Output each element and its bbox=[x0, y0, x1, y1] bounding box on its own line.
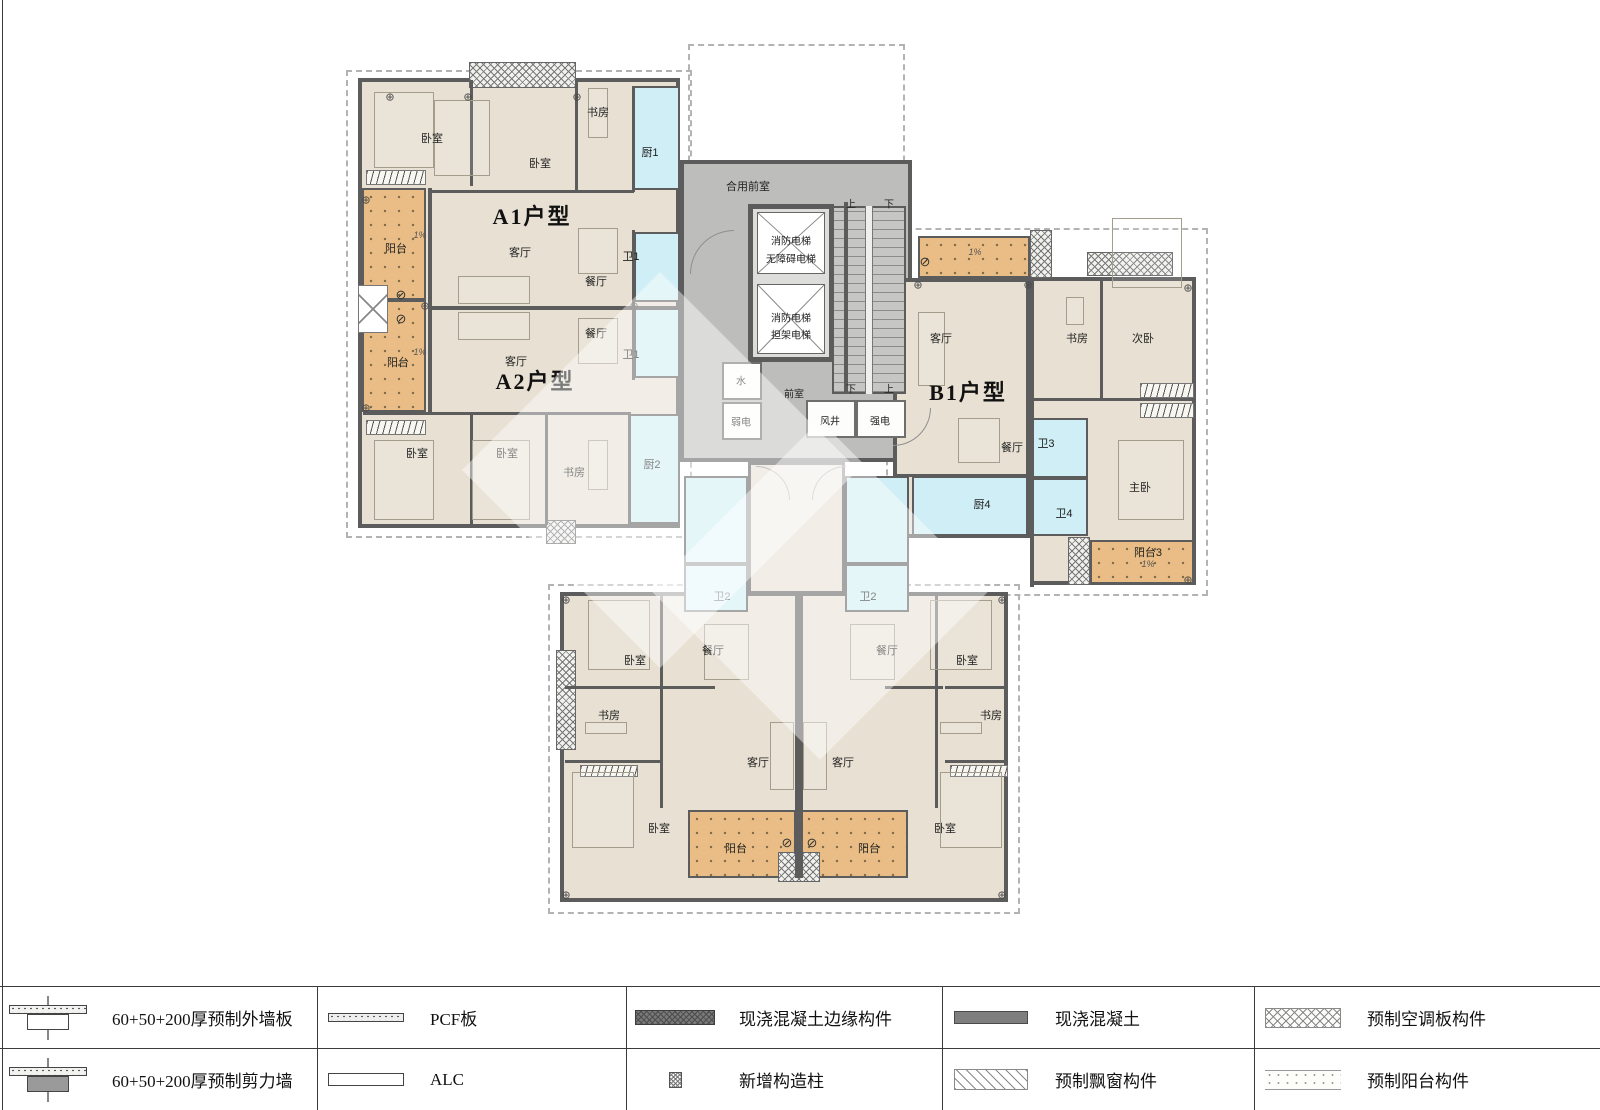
legend-label: 60+50+200厚预制剪力墙 bbox=[112, 1067, 293, 1092]
legend-table: 60+50+200厚预制外墙板 PCF板 现浇混凝土边缘构件 现浇混凝土 预制空… bbox=[0, 986, 1600, 1110]
room-label: 次卧 bbox=[1132, 330, 1154, 346]
room-label: 卧室 bbox=[406, 445, 428, 461]
slope-label: 1% bbox=[968, 247, 981, 257]
floor-drain-icon: ⊘ bbox=[782, 835, 793, 851]
room-label: 客厅 bbox=[832, 754, 854, 770]
room-label: 客厅 bbox=[747, 754, 769, 770]
room-label: 卧室 bbox=[624, 652, 646, 668]
legend-cell: ALC bbox=[318, 1048, 627, 1110]
room-label: 厨4 bbox=[973, 496, 990, 512]
core-label: 无障碍电梯 bbox=[766, 251, 816, 266]
alc-swatch-icon bbox=[328, 1073, 404, 1086]
core-label: 水 bbox=[736, 373, 746, 388]
room-label: 书房 bbox=[563, 464, 585, 480]
core-label: 上 bbox=[846, 196, 856, 211]
room-label: 卫3 bbox=[1037, 435, 1054, 451]
exterior-wall-section-icon bbox=[9, 996, 87, 1040]
core-label: 风井 bbox=[820, 413, 840, 428]
ac-panel-swatch-icon bbox=[1265, 1008, 1341, 1028]
room-label: 客厅 bbox=[509, 244, 531, 260]
cast-concrete-swatch-icon bbox=[954, 1011, 1028, 1024]
room-label: 厨2 bbox=[643, 456, 660, 472]
room-label: 餐厅 bbox=[585, 325, 607, 341]
room-label: 卫2 bbox=[859, 588, 876, 604]
new-column-swatch-icon bbox=[669, 1072, 682, 1088]
legend-label: 现浇混凝土 bbox=[1055, 1005, 1140, 1030]
legend-cell: 预制空调板构件 bbox=[1255, 986, 1600, 1048]
room-label: 阳台 bbox=[385, 240, 407, 256]
room-label: 餐厅 bbox=[876, 642, 898, 658]
legend-label: ALC bbox=[430, 1070, 464, 1090]
room-label: 客厅 bbox=[505, 353, 527, 369]
room-label: 卧室 bbox=[529, 155, 551, 171]
slope-label: 1% bbox=[413, 347, 426, 357]
room-label: 主卧 bbox=[1129, 479, 1151, 495]
room-label: 书房 bbox=[1066, 330, 1088, 346]
room-label: 厨1 bbox=[641, 144, 658, 160]
room-label: 阳台 bbox=[387, 354, 409, 370]
floor-drain-icon: ⊘ bbox=[396, 287, 407, 303]
floor-plan-canvas: ⊕⊕⊕⊕⊕⊕⊕⊕⊕⊕⊕⊕⊕⊕⊕ A1户型A2户型B1户型卧室卧室书房厨1阳台客厅… bbox=[0, 0, 1600, 1110]
legend-cell: 预制阳台构件 bbox=[1255, 1048, 1600, 1110]
room-label: 餐厅 bbox=[1001, 439, 1023, 455]
room-label: 合用前室 bbox=[726, 178, 770, 194]
floor-drain-icon: ⊘ bbox=[396, 311, 407, 327]
room-label: 卧室 bbox=[956, 652, 978, 668]
room-label: 卧室 bbox=[421, 130, 443, 146]
unit-type-label: A1户型 bbox=[493, 199, 572, 231]
legend-label: 60+50+200厚预制外墙板 bbox=[112, 1005, 293, 1030]
legend-cell: 60+50+200厚预制外墙板 bbox=[0, 986, 318, 1048]
core-label: 强电 bbox=[870, 413, 890, 428]
core-label: 下 bbox=[846, 381, 856, 396]
core-label: 前室 bbox=[784, 386, 804, 401]
room-label: 卧室 bbox=[648, 820, 670, 836]
balcony-member-swatch-icon bbox=[1265, 1070, 1341, 1090]
cast-edge-swatch-icon bbox=[635, 1010, 715, 1025]
pcf-swatch-icon bbox=[328, 1013, 404, 1022]
legend-cell: 新增构造柱 bbox=[627, 1048, 943, 1110]
core-label: 消防电梯 bbox=[771, 233, 811, 248]
legend-label: PCF板 bbox=[430, 1005, 477, 1030]
room-label: 卧室 bbox=[934, 820, 956, 836]
core-label: 消防电梯 bbox=[771, 310, 811, 325]
core-label: 下 bbox=[884, 196, 894, 211]
core-label: 担架电梯 bbox=[771, 327, 811, 342]
floor-drain-icon: ⊘ bbox=[920, 254, 931, 270]
room-label: 客厅 bbox=[930, 330, 952, 346]
room-label: 餐厅 bbox=[702, 642, 724, 658]
room-label: 阳台3 bbox=[1134, 544, 1162, 560]
room-label: 卫4 bbox=[1055, 505, 1072, 521]
room-label: 卫2 bbox=[713, 588, 730, 604]
legend-label: 预制空调板构件 bbox=[1367, 1005, 1486, 1030]
legend-label: 预制飘窗构件 bbox=[1055, 1067, 1157, 1092]
slope-label: 1% bbox=[1141, 559, 1154, 569]
legend-cell: 预制飘窗构件 bbox=[943, 1048, 1255, 1110]
room-label: 卫1 bbox=[622, 346, 639, 362]
legend-label: 新增构造柱 bbox=[739, 1067, 824, 1092]
room-label: 书房 bbox=[598, 707, 620, 723]
legend-label: 预制阳台构件 bbox=[1367, 1067, 1469, 1092]
legend-cell: 60+50+200厚预制剪力墙 bbox=[0, 1048, 318, 1110]
slope-label: 1% bbox=[413, 230, 426, 240]
core-label: 弱电 bbox=[731, 414, 751, 429]
room-label: 餐厅 bbox=[585, 273, 607, 289]
legend-label: 现浇混凝土边缘构件 bbox=[739, 1005, 892, 1030]
shear-wall-section-icon bbox=[9, 1058, 87, 1102]
bay-window-swatch-icon bbox=[954, 1069, 1028, 1090]
room-label: 卧室 bbox=[496, 445, 518, 461]
room-label: 阳台 bbox=[858, 840, 880, 856]
floor-drain-icon: ⊘ bbox=[807, 835, 818, 851]
unit-type-label: B1户型 bbox=[929, 375, 1007, 407]
core-label: 上 bbox=[884, 381, 894, 396]
room-label: 书房 bbox=[587, 104, 609, 120]
room-label: 书房 bbox=[980, 707, 1002, 723]
legend-cell: 现浇混凝土边缘构件 bbox=[627, 986, 943, 1048]
legend-cell: 现浇混凝土 bbox=[943, 986, 1255, 1048]
room-label: 阳台 bbox=[725, 840, 747, 856]
legend-cell: PCF板 bbox=[318, 986, 627, 1048]
room-label: 卫1 bbox=[622, 248, 639, 264]
room-label-layer: A1户型A2户型B1户型卧室卧室书房厨1阳台客厅餐厅卫1餐厅客厅阳台卫1卧室卧室… bbox=[0, 0, 1600, 1110]
